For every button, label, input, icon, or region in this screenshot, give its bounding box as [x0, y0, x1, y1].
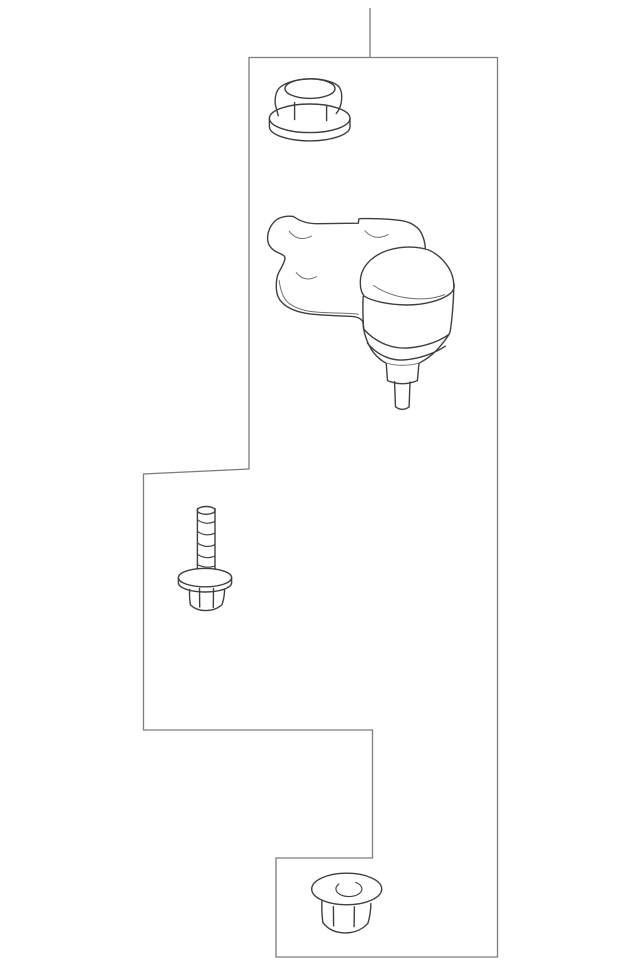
ball-joint-main-lines [268, 216, 455, 409]
ball-joint-stud-lower [395, 382, 410, 410]
flange-nut-bottom [312, 873, 382, 933]
flange-nut-top [269, 79, 350, 141]
ball-joint-detail-lines [279, 231, 445, 365]
nut-top-flange-top [269, 104, 350, 133]
nut-bottom-flange-face [312, 873, 382, 905]
ball-joint-rib-arc-upper-left [289, 231, 311, 238]
bolt-flange-top [178, 568, 231, 586]
ball-joint-assembly [268, 216, 455, 409]
bolt-shaft-tip [197, 507, 215, 515]
ball-joint-rib-arc-lower-left [296, 273, 316, 279]
bolt-shaft-edges [197, 509, 215, 570]
ball-joint-outer-silhouette [268, 216, 454, 383]
frame-outline [144, 58, 498, 958]
ball-joint-bearing-band-upper [364, 329, 449, 348]
ball-joint-housing-left-edge [363, 296, 364, 328]
nut-top-face [285, 79, 335, 99]
ball-joint-dome-seam-arc [373, 285, 444, 298]
ball-joint-stud-shoulder-arc [386, 363, 419, 365]
nut-bottom-hex-corner-edges [333, 907, 354, 927]
nut-bottom-hex-body [322, 901, 371, 933]
diagram-frame [144, 8, 498, 957]
nut-top-flange-rim [269, 118, 350, 141]
parts-diagram [0, 0, 640, 969]
flange-bolt [178, 507, 231, 611]
bolt-thread-lines [197, 520, 215, 567]
parts-diagram-canvas [0, 0, 640, 969]
ball-joint-rib-arc-upper-right [365, 231, 388, 238]
nut-bottom-thread-hole-arc [336, 882, 362, 896]
